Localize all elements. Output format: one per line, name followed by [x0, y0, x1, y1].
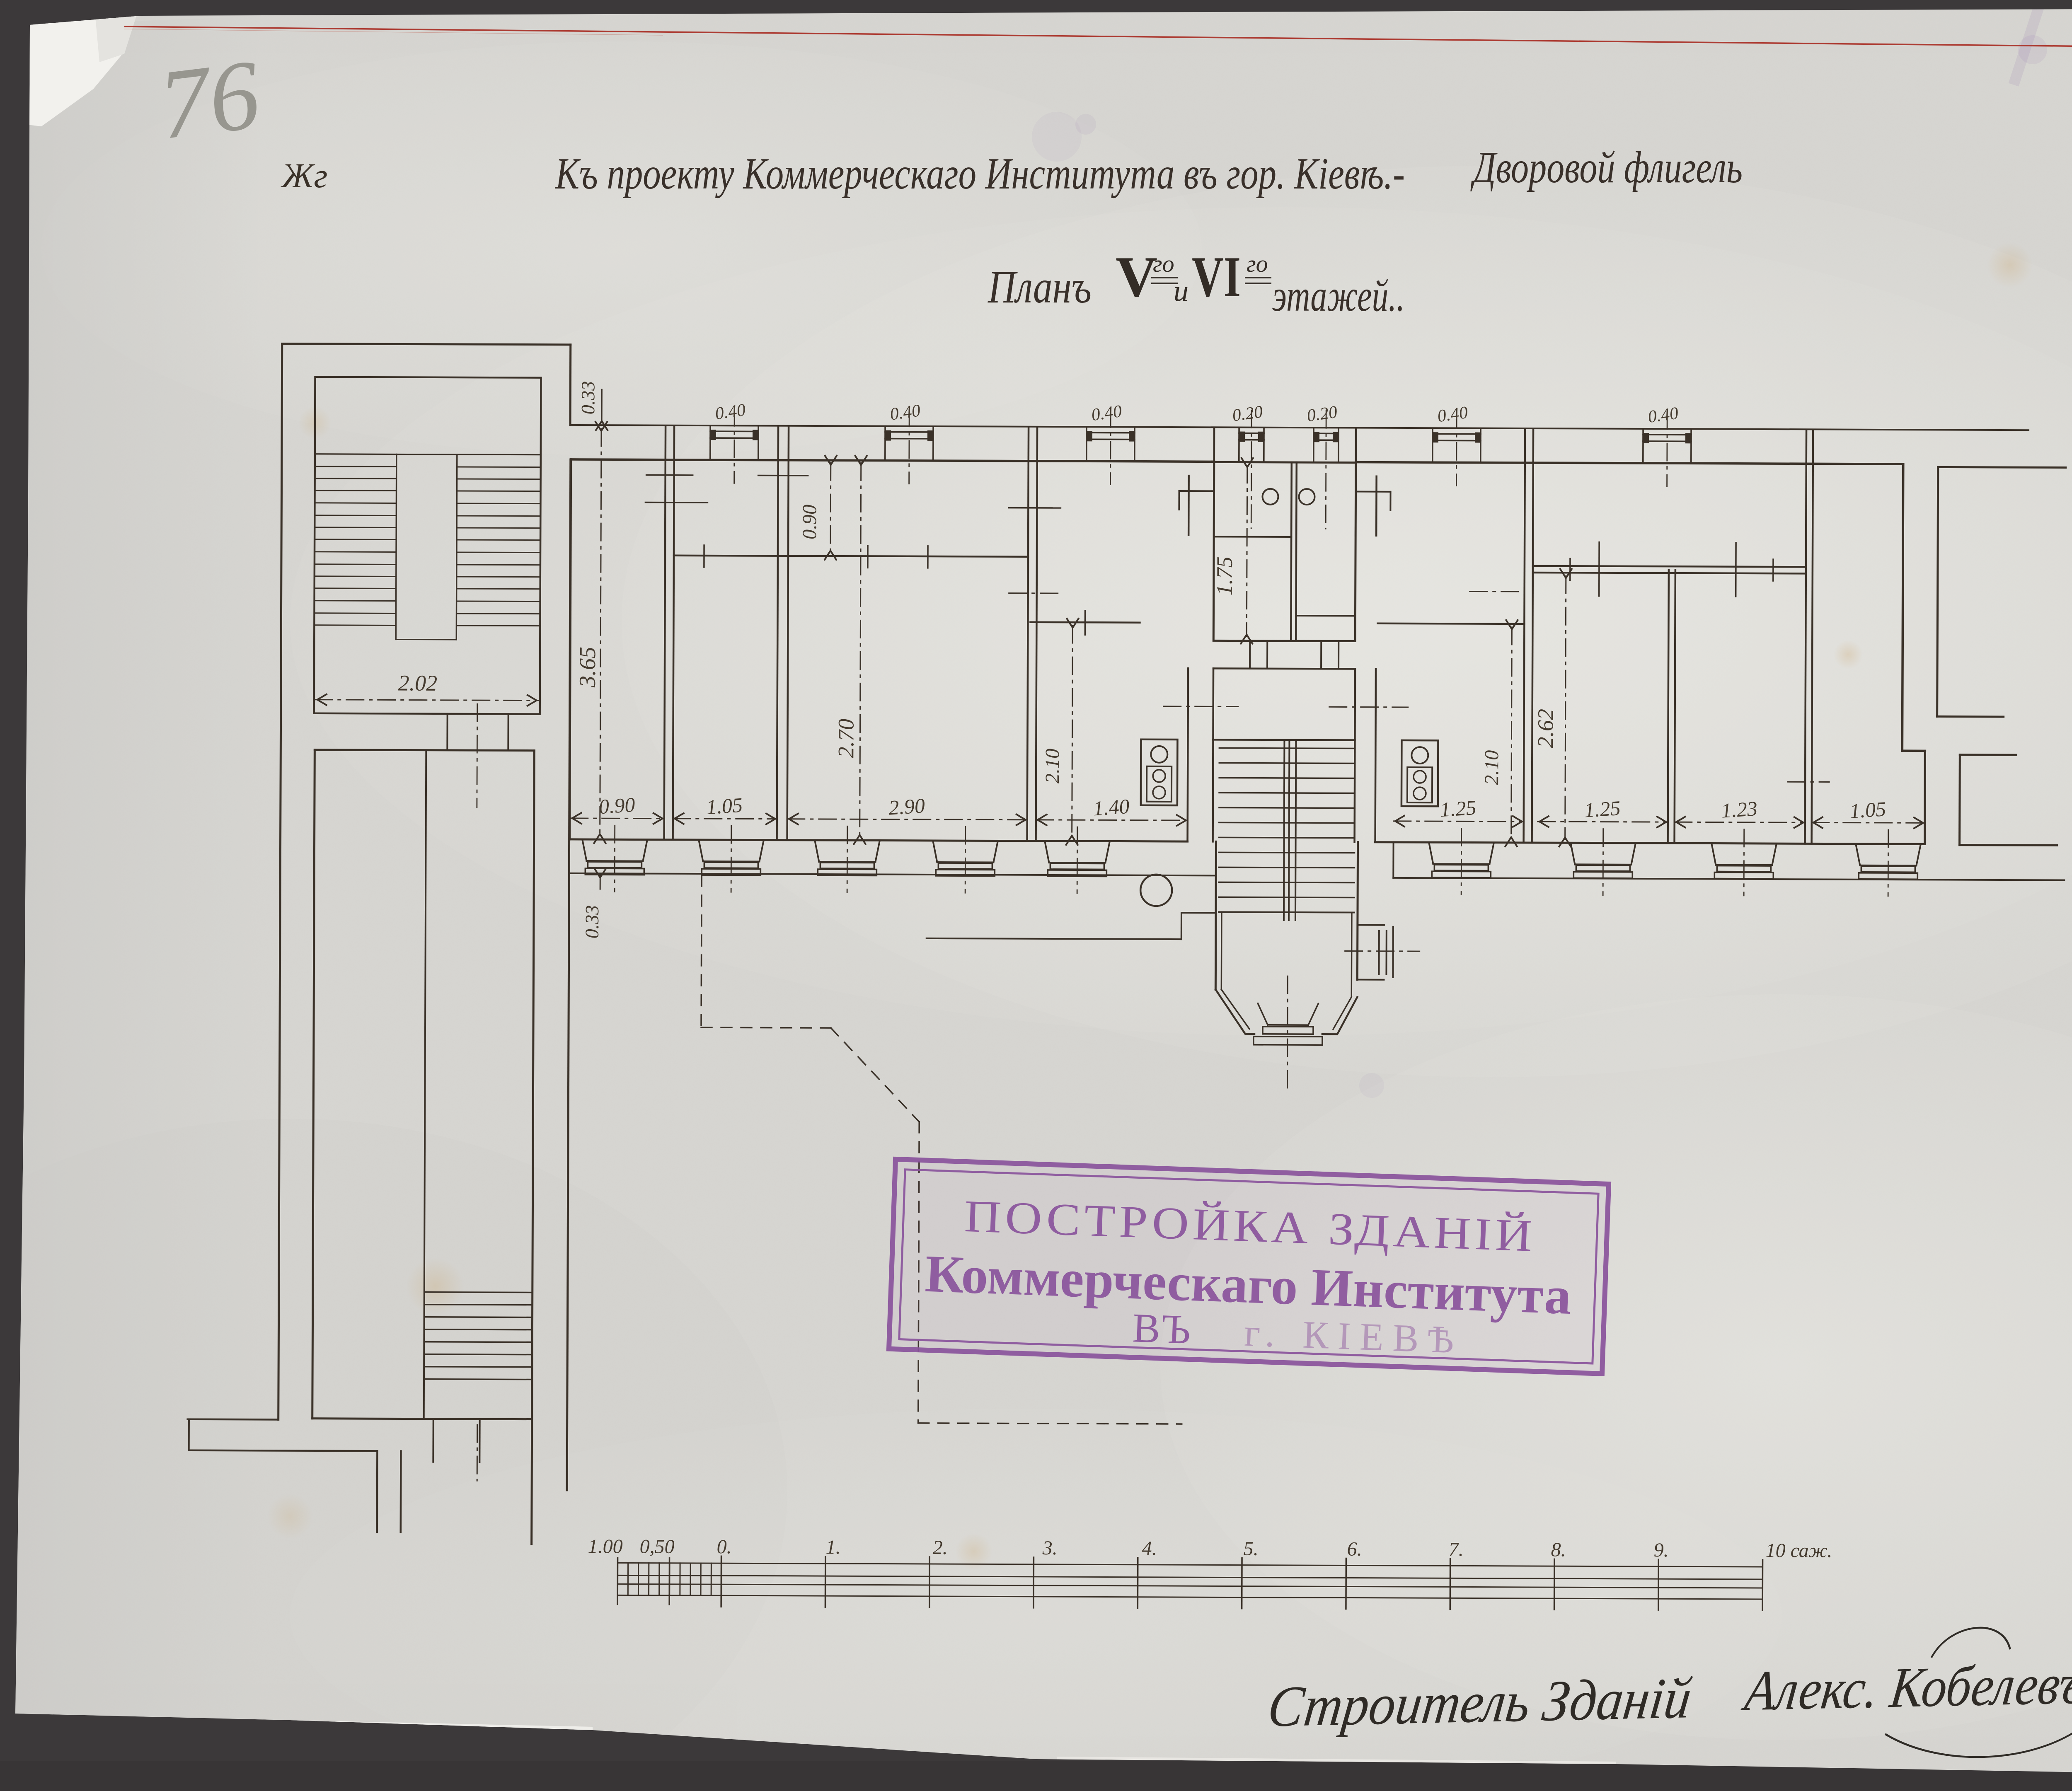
svg-text:2.: 2. — [933, 1537, 948, 1559]
svg-text:2.02: 2.02 — [398, 670, 438, 695]
svg-text:7.: 7. — [1449, 1538, 1464, 1560]
svg-text:2.62: 2.62 — [1533, 709, 1558, 748]
svg-text:го: го — [1153, 250, 1174, 277]
svg-text:5.: 5. — [1244, 1538, 1259, 1560]
svg-text:10 саж.: 10 саж. — [1766, 1540, 1832, 1562]
svg-text:VI: VI — [1192, 245, 1241, 309]
svg-text:0.: 0. — [717, 1536, 732, 1558]
svg-text:ВЪ: ВЪ — [1132, 1305, 1195, 1353]
svg-text:2.90: 2.90 — [888, 794, 926, 819]
svg-text:1.23: 1.23 — [1721, 797, 1758, 822]
svg-text:2.70: 2.70 — [833, 719, 858, 758]
svg-text:1.05: 1.05 — [706, 793, 743, 819]
svg-text:0.90: 0.90 — [598, 793, 636, 819]
svg-text:0.90: 0.90 — [799, 505, 821, 539]
svg-text:1.05: 1.05 — [1849, 797, 1887, 823]
svg-text:6.: 6. — [1347, 1538, 1362, 1560]
svg-text:Жг: Жг — [280, 156, 327, 195]
svg-text:3.: 3. — [1042, 1537, 1058, 1559]
svg-text:го: го — [1247, 250, 1268, 277]
svg-text:4.: 4. — [1142, 1537, 1157, 1559]
svg-text:Планъ: Планъ — [988, 261, 1092, 313]
svg-text:1.00: 1.00 — [588, 1535, 623, 1557]
svg-text:9.: 9. — [1654, 1539, 1669, 1561]
svg-text:г. КІЕВѢ: г. КІЕВѢ — [1244, 1311, 1464, 1362]
svg-text:Строитель Зданій: Строитель Зданій — [1265, 1666, 1695, 1739]
svg-text:0.33: 0.33 — [577, 381, 598, 415]
svg-text:1.: 1. — [826, 1536, 841, 1558]
svg-text:1.75: 1.75 — [1212, 556, 1237, 596]
svg-text:V: V — [1116, 245, 1157, 309]
svg-text:и: и — [1174, 274, 1188, 307]
svg-text:1.25: 1.25 — [1583, 796, 1621, 822]
svg-text:1.40: 1.40 — [1092, 795, 1130, 820]
svg-text:Алекс. Кобелевъ: Алекс. Кобелевъ — [1739, 1652, 2072, 1723]
svg-text:1.25: 1.25 — [1439, 796, 1477, 822]
svg-text:0.33: 0.33 — [581, 905, 603, 939]
svg-text:2.10: 2.10 — [1481, 750, 1503, 785]
svg-text:8.: 8. — [1551, 1539, 1566, 1561]
svg-text:Дворовой флигель: Дворовой флигель — [1470, 143, 1743, 192]
svg-text:Къ проекту Коммерческаго Инсти: Къ проекту Коммерческаго Института въ го… — [554, 149, 1405, 198]
svg-text:3.65: 3.65 — [575, 647, 600, 688]
svg-text:2.10: 2.10 — [1041, 749, 1063, 783]
svg-text:этажей..: этажей.. — [1272, 271, 1405, 321]
svg-text:0,50: 0,50 — [640, 1536, 675, 1558]
svg-text:76: 76 — [153, 39, 266, 160]
